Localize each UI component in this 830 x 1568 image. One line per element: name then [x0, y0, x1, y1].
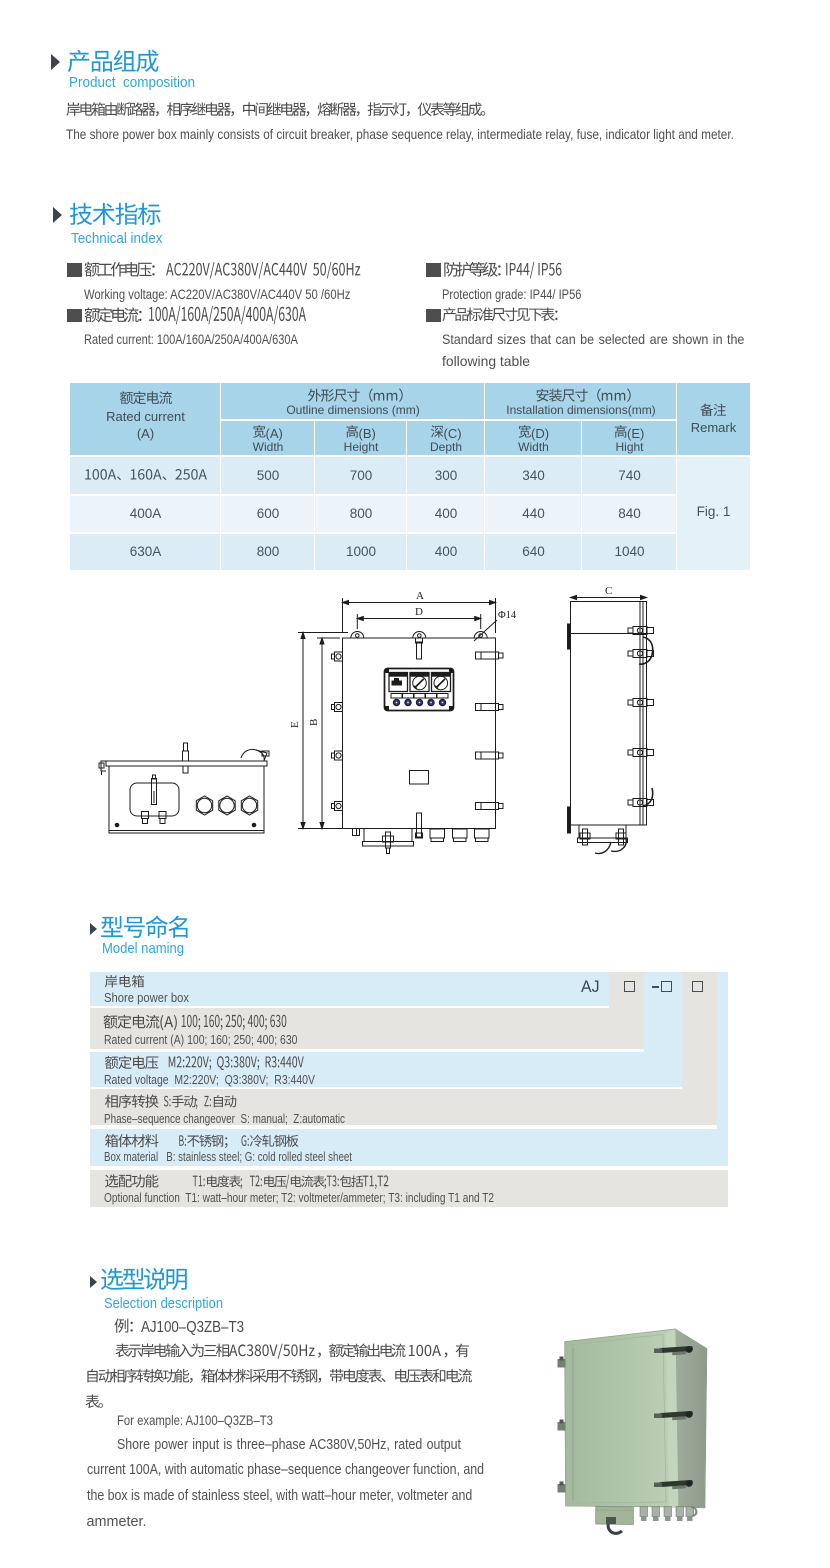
svg-text:B: B — [308, 719, 320, 726]
svg-text:A: A — [416, 590, 424, 602]
svg-text:E: E — [289, 721, 301, 728]
svg-text:Φ14: Φ14 — [498, 610, 517, 621]
svg-text:C: C — [605, 585, 612, 597]
svg-text:D: D — [415, 606, 423, 618]
